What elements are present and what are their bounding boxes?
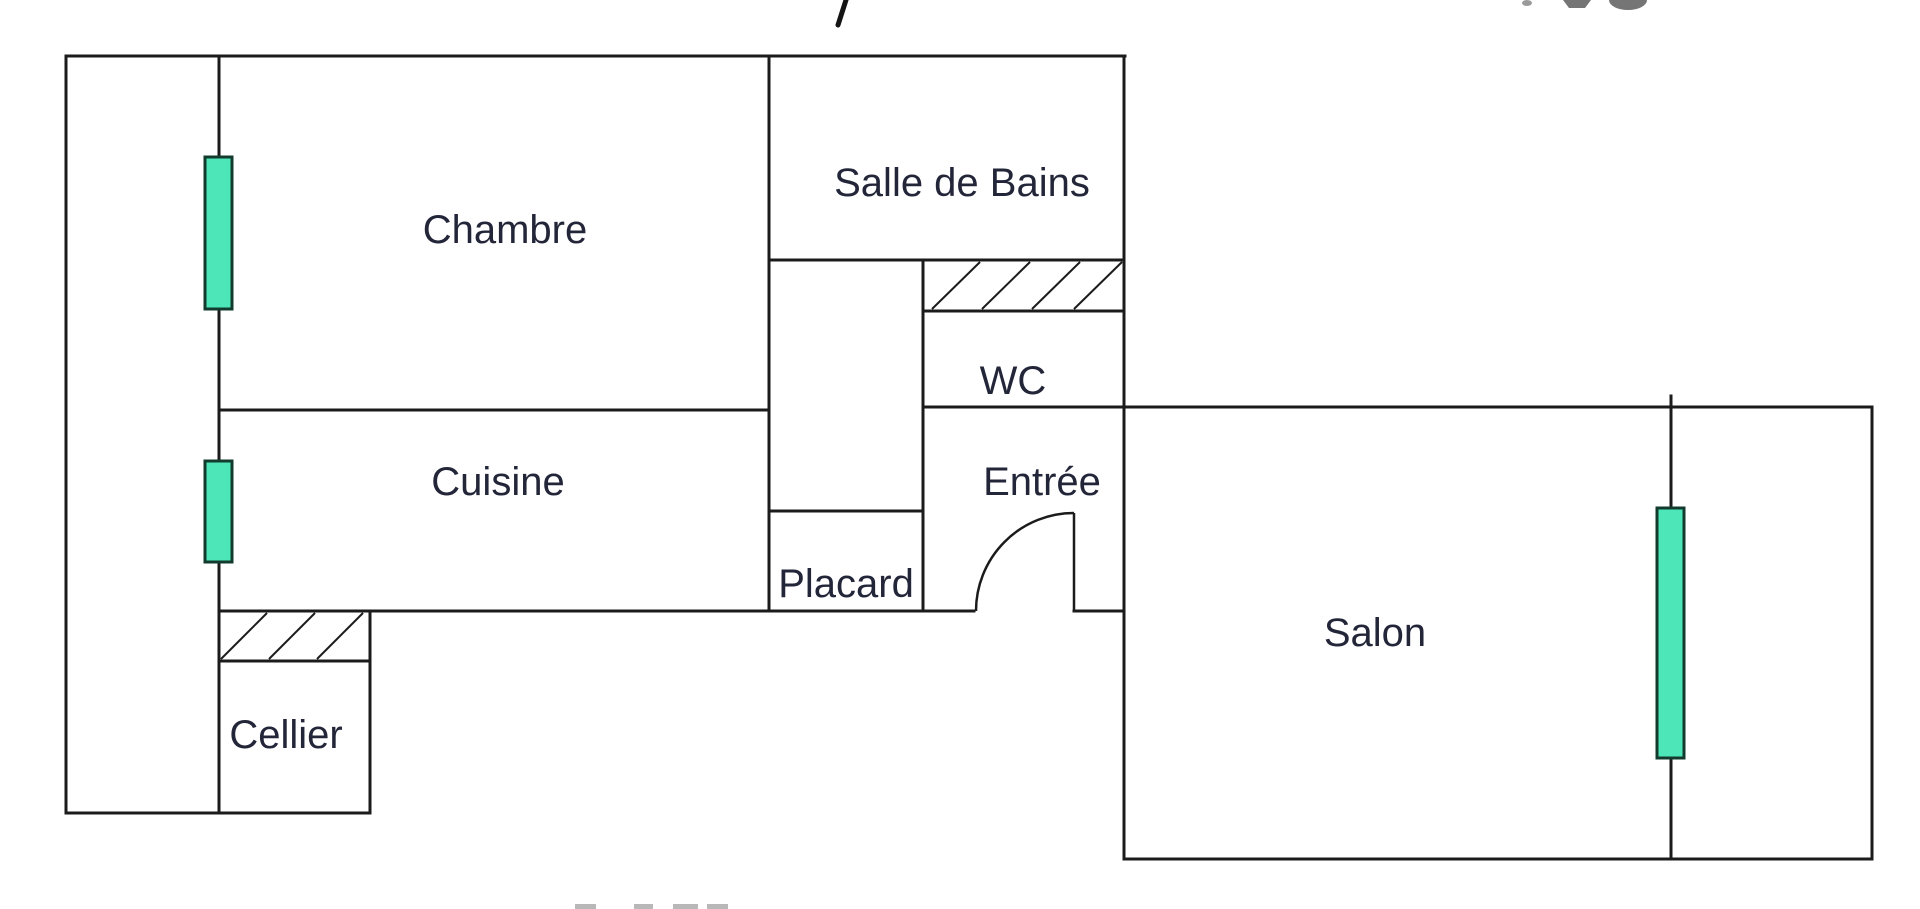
hatch-wc-opening — [932, 262, 1122, 309]
watermark-fragment-bottom-4 — [707, 904, 728, 909]
room-labels: Chambre Salle de Bains WC Cuisine Entrée… — [229, 161, 1426, 757]
room-label-wc: WC — [980, 359, 1047, 403]
window-salon — [1657, 508, 1684, 758]
floor-plan: Chambre Salle de Bains WC Cuisine Entrée… — [0, 0, 1920, 909]
hatch-stroke — [932, 262, 980, 309]
room-label-cuisine: Cuisine — [431, 460, 564, 504]
window-chambre — [205, 157, 232, 309]
room-label-cellier: Cellier — [229, 713, 342, 757]
watermark-fragment-top-round — [1609, 0, 1647, 10]
room-label-placard: Placard — [778, 562, 914, 606]
hatch-stroke — [982, 262, 1030, 309]
door-swing-arc — [976, 513, 1074, 611]
floor-plan-svg: Chambre Salle de Bains WC Cuisine Entrée… — [0, 0, 1920, 909]
watermark-fragment-top-stroke — [838, 0, 846, 25]
hatch-stroke — [1032, 262, 1080, 309]
watermark-fragment-bottom-3 — [673, 904, 698, 909]
watermark-artifacts — [575, 0, 1647, 909]
room-label-chambre: Chambre — [423, 208, 588, 252]
watermark-fragment-bottom-1 — [575, 904, 596, 909]
room-label-entree: Entrée — [983, 460, 1101, 504]
hatch-stroke — [317, 613, 363, 659]
hatch-stroke — [221, 613, 267, 659]
room-label-salon: Salon — [1324, 611, 1426, 655]
entree-door — [976, 513, 1074, 611]
watermark-fragment-bottom-2 — [634, 904, 653, 909]
hatch-stroke — [1074, 262, 1122, 309]
window-cuisine — [205, 461, 232, 562]
watermark-fragment-top-trapezoid — [1563, 0, 1591, 8]
hatch-stroke — [269, 613, 315, 659]
hatch-cellier-opening — [221, 613, 363, 659]
watermark-fragment-top-dot — [1522, 0, 1532, 6]
room-label-salle-de-bains: Salle de Bains — [834, 161, 1090, 205]
